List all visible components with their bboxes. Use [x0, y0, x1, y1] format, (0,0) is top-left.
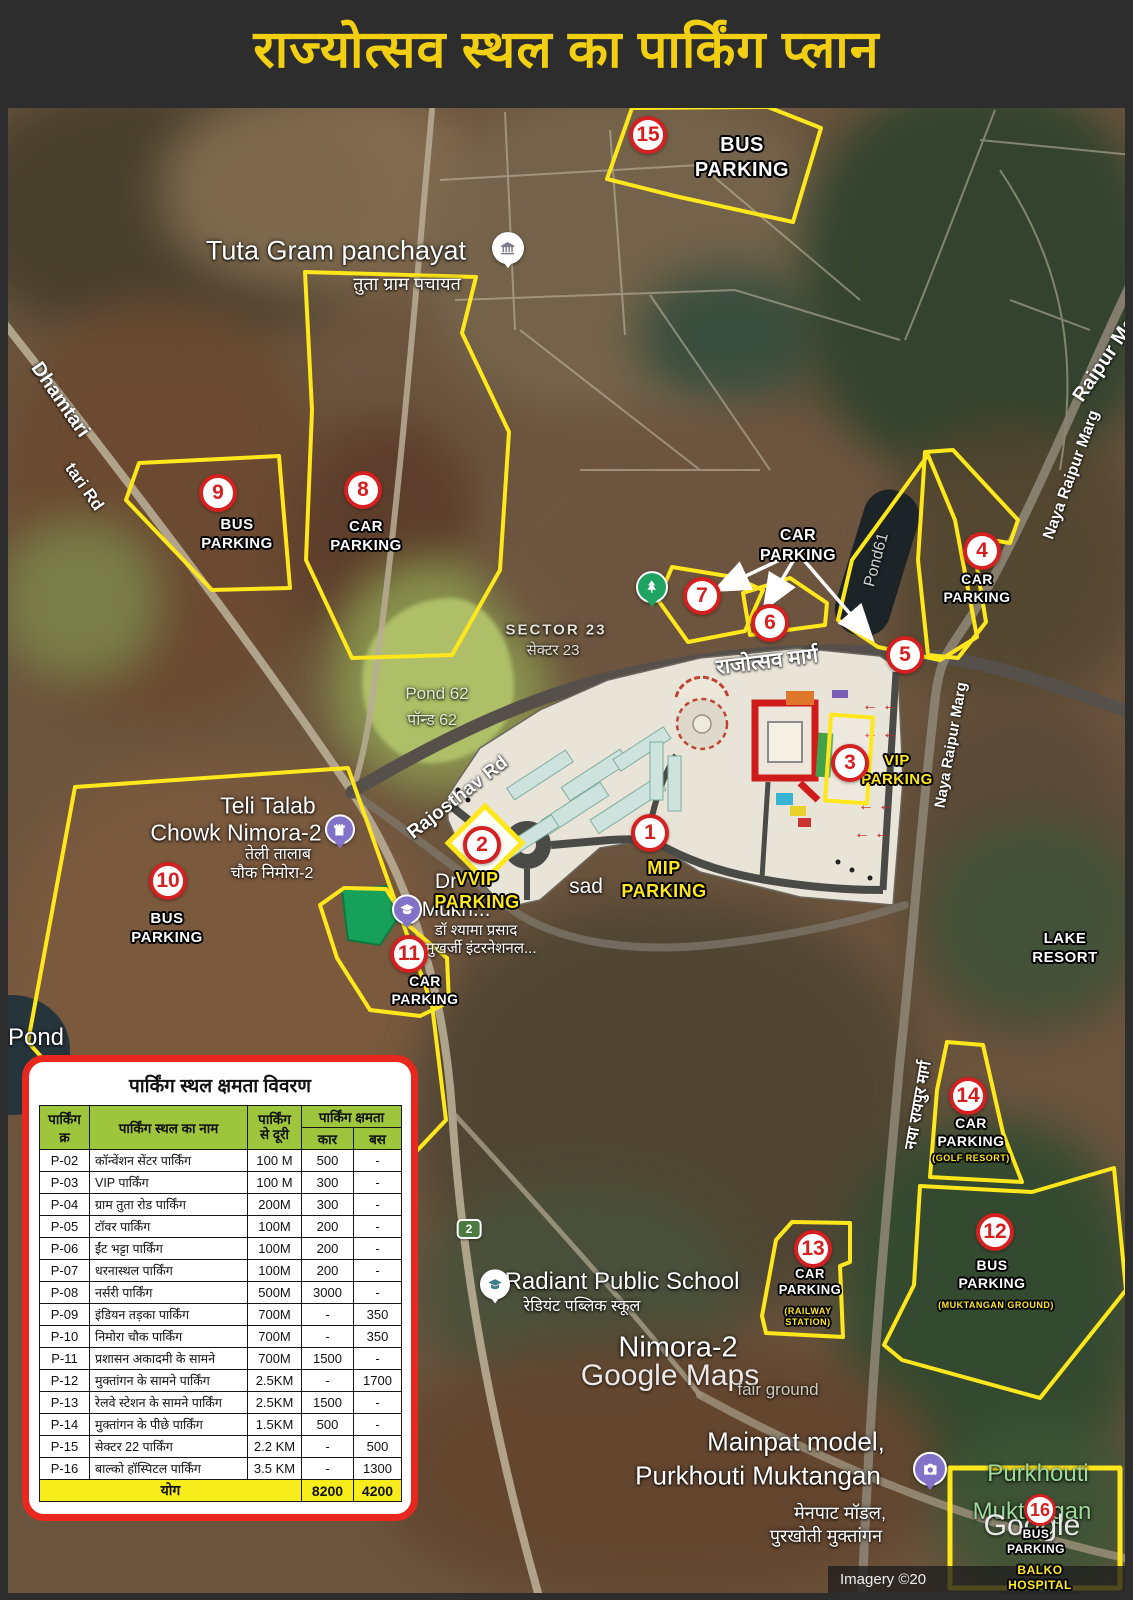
cell-car: 200	[302, 1238, 354, 1260]
label-zone16-parking: BUS PARKING	[1007, 1527, 1065, 1557]
place-radiant-hi: रेडियंट पब्लिक स्कूल	[524, 1294, 641, 1316]
cell-name: टॉवर पार्किंग	[90, 1216, 248, 1238]
cell-car: -	[302, 1326, 354, 1348]
zone-8	[305, 272, 509, 658]
cell-car: -	[302, 1436, 354, 1458]
svg-text:←: ←	[882, 697, 898, 714]
table-row: P-15सेक्टर 22 पार्किंग2.2 KM-500	[40, 1436, 402, 1458]
map-marker-4: 4	[963, 532, 1001, 570]
svg-text:←: ←	[882, 725, 898, 742]
camera-icon	[921, 1460, 940, 1479]
map-marker-8: 8	[344, 471, 382, 509]
marker-number: 4	[976, 539, 988, 563]
map-marker-6: 6	[751, 604, 789, 642]
cell-name: ग्राम तुता रोड पार्किंग	[90, 1194, 248, 1216]
imagery-text: Imagery ©20	[840, 1571, 926, 1588]
cell-car: 1500	[302, 1348, 354, 1370]
place-mainpat-hi1: मेनपाट मॉडल,	[794, 1501, 886, 1525]
cell-dist: 100M	[248, 1238, 302, 1260]
cell-dist: 1.5KM	[248, 1414, 302, 1436]
place-teli-en1: Teli Talab	[220, 793, 315, 820]
cell-dist: 2.5KM	[248, 1370, 302, 1392]
map-marker-1: 1	[631, 814, 669, 852]
marker-number: 10	[156, 869, 179, 893]
cell-dist: 700M	[248, 1348, 302, 1370]
label-zone15-parking: BUS PARKING	[695, 133, 789, 183]
place-dr-en2: sad	[569, 875, 603, 899]
map-world: ←← ←← ←← ←←	[8, 108, 1125, 1593]
label-zone16-sub: BALKO HOSPITAL	[994, 1563, 1087, 1593]
marker-number: 12	[983, 1220, 1006, 1244]
cell-bus: -	[354, 1282, 402, 1304]
cell-id: P-14	[40, 1414, 90, 1436]
cell-bus: -	[354, 1216, 402, 1238]
table-row: P-05टॉवर पार्किंग100M200-	[40, 1216, 402, 1238]
place-mainpat-hi2: पुरखोती मुक्तांगन	[770, 1524, 882, 1548]
cell-car: 300	[302, 1194, 354, 1216]
cell-id: P-06	[40, 1238, 90, 1260]
cell-id: P-08	[40, 1282, 90, 1304]
map-marker-13: 13	[794, 1230, 832, 1268]
cell-bus: 350	[354, 1304, 402, 1326]
map-marker-2: 2	[463, 826, 501, 864]
cell-dist: 700M	[248, 1326, 302, 1348]
map-marker-15: 15	[629, 116, 667, 154]
marker-number: 15	[636, 123, 659, 147]
total-bus: 4200	[354, 1480, 402, 1502]
cell-name: VIP पार्किंग	[90, 1172, 248, 1194]
cell-id: P-12	[40, 1370, 90, 1392]
cell-id: P-15	[40, 1436, 90, 1458]
satellite-map: ←← ←← ←← ←←	[8, 108, 1125, 1593]
map-marker-9: 9	[199, 474, 237, 512]
cell-id: P-07	[40, 1260, 90, 1282]
table-title: पार्किंग स्थल क्षमता विवरण	[39, 1072, 401, 1098]
map-marker-14: 14	[949, 1077, 987, 1115]
cell-car: 1500	[302, 1392, 354, 1414]
table-row: P-11प्रशासन अकादमी के सामने700M1500-	[40, 1348, 402, 1370]
cell-name: मुक्तांगन के सामने पार्किंग	[90, 1370, 248, 1392]
svg-text:←: ←	[878, 797, 894, 814]
marker-number: 9	[212, 481, 224, 505]
cell-id: P-02	[40, 1150, 90, 1172]
place-sector23-en: SECTOR 23	[505, 622, 606, 639]
place-dr-hi2: मुखर्जी इंटरनेशनल...	[425, 938, 536, 958]
place-mainpat-en1: Mainpat model,	[707, 1427, 885, 1458]
label-zone10-parking: BUS PARKING	[131, 910, 203, 948]
col-header-car: कार	[302, 1128, 354, 1150]
cell-name: धरनास्थल पार्किंग	[90, 1260, 248, 1282]
route-shield-2: 2	[457, 1219, 482, 1239]
cell-car: -	[302, 1304, 354, 1326]
col-header-capacity: पार्किंग क्षमता	[302, 1106, 402, 1128]
table-row: P-04ग्राम तुता रोड पार्किंग200M300-	[40, 1194, 402, 1216]
svg-text:←: ←	[874, 825, 890, 842]
marker-number: 5	[899, 643, 911, 667]
label-pointer-car-parking: CAR PARKING	[760, 526, 836, 566]
cell-dist: 500M	[248, 1282, 302, 1304]
cell-bus: 1700	[354, 1370, 402, 1392]
label-zone14-sub: (GOLF RESORT)	[932, 1153, 1010, 1164]
building-icon	[499, 239, 516, 256]
panchayat-building-pin	[492, 232, 524, 264]
map-marker-11: 11	[390, 935, 428, 973]
cell-bus: -	[354, 1150, 402, 1172]
cell-id: P-13	[40, 1392, 90, 1414]
cell-name: नर्सरी पार्किंग	[90, 1282, 248, 1304]
mukherjee-school-pin	[392, 894, 422, 924]
marker-number: 2	[476, 833, 488, 857]
cell-id: P-03	[40, 1172, 90, 1194]
table-total-row: योग 8200 4200	[40, 1480, 402, 1502]
map-marker-10: 10	[149, 862, 187, 900]
cell-bus: -	[354, 1414, 402, 1436]
marker-number: 14	[956, 1084, 979, 1108]
table-row: P-14मुक्तांगन के पीछे पार्किंग1.5KM500-	[40, 1414, 402, 1436]
label-zone12-parking: BUS PARKING	[958, 1257, 1025, 1292]
table-row: P-03VIP पार्किंग100 M300-	[40, 1172, 402, 1194]
map-marker-7: 7	[683, 577, 721, 615]
col-header-id: पार्किंग क्र	[40, 1106, 90, 1150]
label-zone8-parking: CAR PARKING	[330, 518, 402, 556]
label-zone9-parking: BUS PARKING	[201, 516, 273, 554]
col-header-bus: बस	[354, 1128, 402, 1150]
cell-name: मुक्तांगन के पीछे पार्किंग	[90, 1414, 248, 1436]
place-lake-resort: LAKE RESORT	[1031, 930, 1099, 968]
total-label: योग	[40, 1480, 302, 1502]
school-icon	[399, 901, 415, 917]
cell-bus: -	[354, 1194, 402, 1216]
fort-icon	[332, 821, 348, 837]
tree-pin	[636, 571, 668, 603]
place-tuta-en: Tuta Gram panchayat	[206, 236, 466, 267]
cell-dist: 2.5KM	[248, 1392, 302, 1414]
cell-name: प्रशासन अकादमी के सामने	[90, 1348, 248, 1370]
place-radiant-en: Radiant Public School	[505, 1268, 740, 1296]
svg-text:←: ←	[862, 697, 878, 714]
cell-bus: 350	[354, 1326, 402, 1348]
marker-number: 8	[357, 478, 369, 502]
cell-bus: -	[354, 1392, 402, 1414]
label-vip-parking: VIP PARKING	[861, 752, 933, 790]
cell-name: निमोरा चौक पार्किंग	[90, 1326, 248, 1348]
cell-car: 500	[302, 1150, 354, 1172]
map-marker-3: 3	[831, 744, 869, 782]
cell-name: कॉन्वेंशन सेंटर पार्किंग	[90, 1150, 248, 1172]
cell-id: P-04	[40, 1194, 90, 1216]
radiant-school-pin	[480, 1269, 510, 1299]
svg-text:←: ←	[854, 825, 870, 842]
capacity-table-card: पार्किंग स्थल क्षमता विवरण पार्किंग क्र …	[22, 1055, 418, 1521]
place-purkhouti-1: Purkhouti	[987, 1460, 1088, 1488]
cell-id: P-11	[40, 1348, 90, 1370]
label-mip-parking: MIP PARKING	[621, 857, 706, 902]
place-pond-left: Pond	[8, 1024, 64, 1052]
label-zone4-parking: CAR PARKING	[943, 571, 1010, 606]
table-row: P-12मुक्तांगन के सामने पार्किंग2.5KM-170…	[40, 1370, 402, 1392]
map-marker-16: 16	[1024, 1494, 1056, 1526]
place-sector23-hi: सेक्टर 23	[527, 640, 580, 660]
marker-number: 16	[1030, 1500, 1050, 1521]
place-tuta-hi: तुता ग्राम पचायत	[353, 272, 461, 296]
marker-number: 7	[696, 584, 708, 608]
watermark-google-maps: Google Maps	[581, 1359, 759, 1393]
cell-dist: 2.2 KM	[248, 1436, 302, 1458]
capacity-table: पार्किंग क्र पार्किंग स्थल का नाम पार्कि…	[39, 1105, 402, 1502]
cell-bus: -	[354, 1238, 402, 1260]
place-pond62-hi: पॉन्ड 62	[407, 708, 457, 730]
camera-pin	[913, 1452, 947, 1486]
cell-id: P-16	[40, 1458, 90, 1480]
teli-fort-pin	[325, 814, 355, 844]
place-pond62-en: Pond 62	[405, 684, 468, 704]
cell-bus: -	[354, 1348, 402, 1370]
table-row: P-08नर्सरी पार्किंग500M3000-	[40, 1282, 402, 1304]
map-marker-12: 12	[976, 1213, 1014, 1251]
cell-dist: 700M	[248, 1304, 302, 1326]
marker-number: 3	[844, 751, 856, 775]
tree-icon	[643, 578, 660, 595]
table-row: P-10निमोरा चौक पार्किंग700M-350	[40, 1326, 402, 1348]
cell-id: P-05	[40, 1216, 90, 1238]
table-row: P-02कॉन्वेंशन सेंटर पार्किंग100 M500-	[40, 1150, 402, 1172]
marker-number: 11	[398, 942, 420, 966]
table-row: P-16बाल्को हॉस्पिटल पार्किंग3.5 KM-1300	[40, 1458, 402, 1480]
cell-dist: 100M	[248, 1216, 302, 1238]
poster-title: राज्योत्सव स्थल का पार्किंग प्लान	[0, 12, 1133, 83]
cell-dist: 200M	[248, 1194, 302, 1216]
venue-orange-block	[786, 691, 814, 705]
label-zone14-parking: CAR PARKING	[937, 1115, 1004, 1150]
cell-name: सेक्टर 22 पार्किंग	[90, 1436, 248, 1458]
col-header-name: पार्किंग स्थल का नाम	[90, 1106, 248, 1150]
cell-car: 500	[302, 1414, 354, 1436]
parking-plan-poster: राज्योत्सव स्थल का पार्किंग प्लान	[0, 0, 1133, 1600]
cell-car: 200	[302, 1260, 354, 1282]
graduation-cap-icon	[487, 1276, 503, 1292]
cell-name: इंडियन तड़का पार्किंग	[90, 1304, 248, 1326]
cell-car: -	[302, 1370, 354, 1392]
total-car: 8200	[302, 1480, 354, 1502]
table-row: P-06ईंट भट्टा पार्किंग100M200-	[40, 1238, 402, 1260]
cell-car: 200	[302, 1216, 354, 1238]
label-zone13-sub: (RAILWAY STATION)	[784, 1306, 831, 1329]
cell-id: P-10	[40, 1326, 90, 1348]
cell-name: बाल्को हॉस्पिटल पार्किंग	[90, 1458, 248, 1480]
marker-number: 1	[644, 821, 656, 845]
cell-car: 3000	[302, 1282, 354, 1304]
col-header-dist: पार्किंग से दूरी	[248, 1106, 302, 1150]
label-zone12-sub: (MUKTANGAN GROUND)	[938, 1300, 1054, 1311]
cell-dist: 100 M	[248, 1172, 302, 1194]
cell-id: P-09	[40, 1304, 90, 1326]
marker-number: 6	[764, 611, 776, 635]
label-zone13-parking: CAR PARKING	[779, 1266, 841, 1299]
cell-name: ईंट भट्टा पार्किंग	[90, 1238, 248, 1260]
place-teli-hi2: चौक निमोरा-2	[231, 861, 314, 883]
table-row: P-13रेलवे स्टेशन के सामने पार्किंग2.5KM1…	[40, 1392, 402, 1414]
table-row: P-07धरनास्थल पार्किंग100M200-	[40, 1260, 402, 1282]
cell-dist: 3.5 KM	[248, 1458, 302, 1480]
place-dr-hi1: डॉ श्यामा प्रसाद	[435, 920, 518, 940]
cell-car: 300	[302, 1172, 354, 1194]
cell-car: -	[302, 1458, 354, 1480]
cell-bus: 1300	[354, 1458, 402, 1480]
cell-name: रेलवे स्टेशन के सामने पार्किंग	[90, 1392, 248, 1414]
place-fair-ground: fair ground	[737, 1380, 818, 1400]
cell-bus: -	[354, 1172, 402, 1194]
map-marker-5: 5	[886, 636, 924, 674]
cell-dist: 100M	[248, 1260, 302, 1282]
marker-number: 13	[801, 1237, 824, 1261]
cell-dist: 100 M	[248, 1150, 302, 1172]
place-mainpat-en2: Purkhouti Muktangan	[635, 1461, 881, 1492]
cell-bus: -	[354, 1260, 402, 1282]
label-zone11-parking: CAR PARKING	[391, 973, 458, 1008]
table-row: P-09इंडियन तड़का पार्किंग700M-350	[40, 1304, 402, 1326]
label-vvip-parking: VVIP PARKING	[434, 868, 519, 913]
cell-bus: 500	[354, 1436, 402, 1458]
